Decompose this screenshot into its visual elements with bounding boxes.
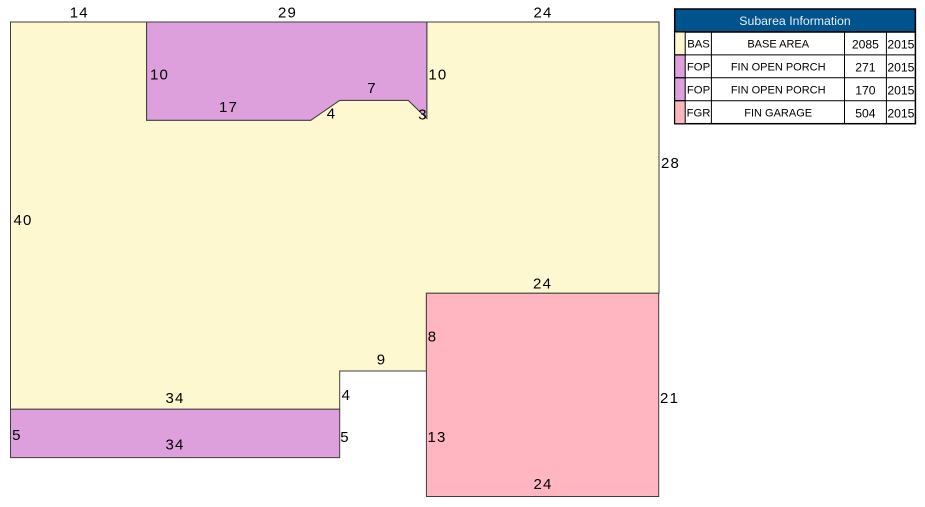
svg-text:FOP: FOP — [687, 62, 710, 74]
svg-text:170: 170 — [855, 84, 876, 98]
svg-text:3: 3 — [418, 107, 428, 124]
svg-text:504: 504 — [855, 107, 876, 121]
svg-text:8: 8 — [428, 329, 438, 346]
svg-text:2015: 2015 — [887, 61, 914, 75]
svg-text:BAS: BAS — [687, 39, 710, 51]
svg-text:FIN GARAGE: FIN GARAGE — [744, 108, 812, 120]
svg-text:5: 5 — [340, 429, 350, 446]
svg-text:4: 4 — [342, 387, 352, 404]
svg-text:24: 24 — [533, 5, 552, 22]
svg-text:5: 5 — [12, 427, 22, 444]
svg-text:17: 17 — [219, 99, 238, 116]
svg-text:Subarea Information: Subarea Information — [739, 14, 851, 28]
svg-text:10: 10 — [428, 67, 447, 84]
svg-text:7: 7 — [367, 80, 377, 97]
svg-text:FIN OPEN PORCH: FIN OPEN PORCH — [731, 85, 826, 97]
svg-text:FOP: FOP — [687, 85, 710, 97]
svg-text:14: 14 — [70, 5, 89, 22]
svg-text:271: 271 — [855, 61, 876, 75]
svg-text:2085: 2085 — [852, 38, 879, 52]
svg-text:BASE AREA: BASE AREA — [747, 39, 809, 51]
svg-text:2015: 2015 — [887, 84, 914, 98]
svg-text:2015: 2015 — [887, 107, 914, 121]
svg-text:2015: 2015 — [887, 38, 914, 52]
svg-text:9: 9 — [377, 352, 387, 369]
svg-text:40: 40 — [13, 212, 32, 229]
svg-text:24: 24 — [533, 276, 552, 293]
svg-text:29: 29 — [278, 5, 297, 22]
svg-text:13: 13 — [427, 429, 446, 446]
svg-text:24: 24 — [533, 476, 552, 493]
svg-text:FIN OPEN PORCH: FIN OPEN PORCH — [731, 62, 826, 74]
svg-text:21: 21 — [660, 390, 679, 407]
svg-text:FGR: FGR — [687, 108, 711, 120]
svg-text:34: 34 — [165, 437, 184, 454]
svg-text:10: 10 — [150, 67, 169, 84]
svg-text:4: 4 — [327, 105, 337, 122]
svg-text:34: 34 — [165, 390, 184, 407]
svg-text:28: 28 — [661, 155, 680, 172]
